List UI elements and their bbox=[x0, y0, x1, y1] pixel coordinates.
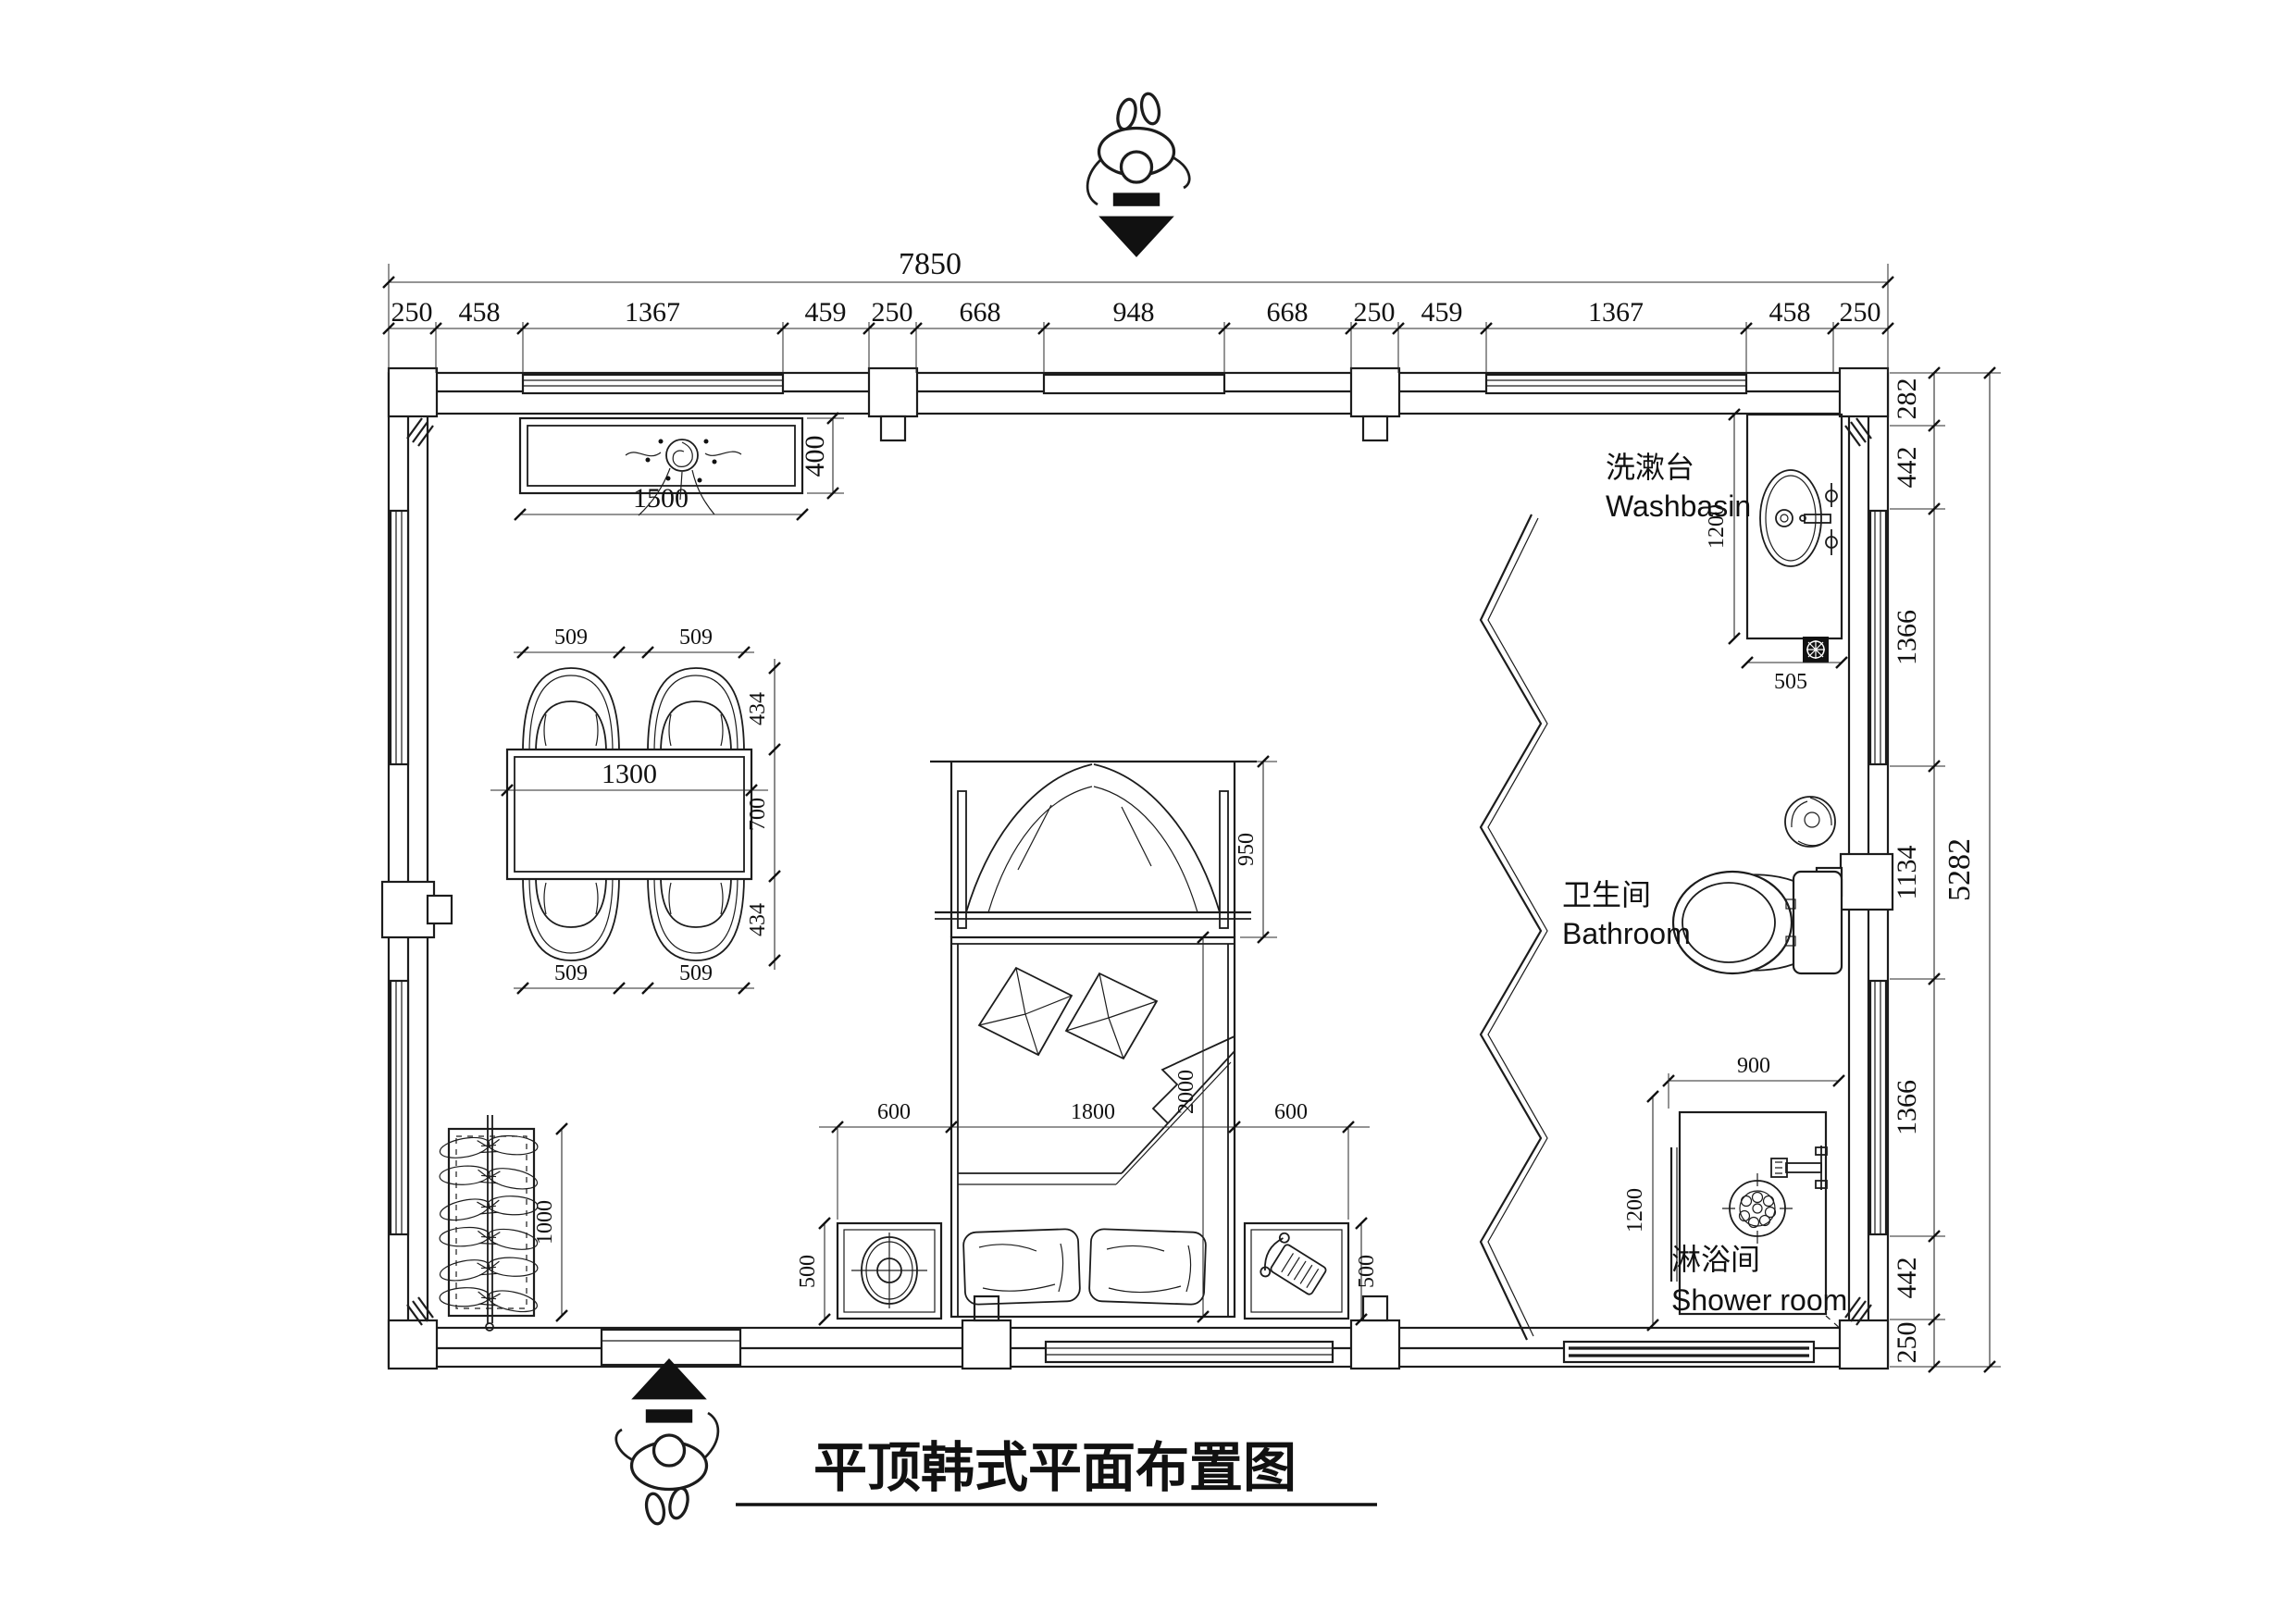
label-shower-zh: 淋浴间 bbox=[1671, 1243, 1760, 1276]
label-bathroom-en: Bathroom bbox=[1562, 917, 1691, 950]
entry-top bbox=[1087, 92, 1189, 257]
window-bottom-center bbox=[1046, 1342, 1333, 1362]
shower-drain-icon bbox=[1722, 1173, 1793, 1244]
shower-area: 900 1200 淋浴间 Shower room bbox=[1623, 1054, 1847, 1331]
bed-set: 600 1800 600 2000 950 500 500 bbox=[796, 756, 1379, 1325]
dim-chair-2: 509 bbox=[554, 961, 588, 985]
dim-right-1: 442 bbox=[1892, 447, 1922, 489]
dim-right-5: 442 bbox=[1892, 1258, 1922, 1299]
dim-top-1: 458 bbox=[459, 297, 501, 328]
dim-console-width: 1500 bbox=[633, 483, 689, 514]
dim-chair-3: 509 bbox=[679, 961, 713, 985]
dim-nightstand-right: 500 bbox=[1355, 1255, 1379, 1288]
dining-set: 1300 509 509 509 509 434 700 434 bbox=[490, 626, 780, 994]
dim-top-12: 250 bbox=[1840, 297, 1881, 328]
toilet-area: 卫生间 Bathroom bbox=[1562, 797, 1842, 973]
floor-drain-icon bbox=[1803, 637, 1829, 663]
dim-chair-1: 509 bbox=[679, 626, 713, 650]
dim-chair-depth-bottom: 434 bbox=[746, 903, 770, 936]
dim-bed-right: 600 bbox=[1274, 1100, 1308, 1124]
dim-bed-width: 1800 bbox=[1071, 1100, 1115, 1124]
label-washbasin-zh: 洗漱台 bbox=[1606, 451, 1694, 484]
dim-right-6: 250 bbox=[1892, 1322, 1922, 1364]
dim-shower-width: 900 bbox=[1737, 1054, 1770, 1078]
dim-console-depth: 400 bbox=[800, 436, 830, 477]
nightstand-right bbox=[1245, 1223, 1348, 1319]
cushions bbox=[979, 968, 1157, 1059]
washbasin-area: 1200 505 洗漱台 Washbasin bbox=[1606, 409, 1847, 694]
page-title: 平顶韩式平面布置图 bbox=[813, 1438, 1297, 1498]
dim-top-4: 250 bbox=[872, 297, 913, 328]
hanger-icon bbox=[438, 1253, 540, 1284]
dim-total-height: 5282 bbox=[1942, 838, 1977, 901]
window-left-upper bbox=[391, 511, 408, 764]
shower-head-icon bbox=[1771, 1146, 1827, 1190]
hanger-icon bbox=[438, 1191, 540, 1224]
hanger-icon bbox=[438, 1161, 540, 1193]
dim-shower-depth: 1200 bbox=[1623, 1188, 1647, 1233]
nightstand-left bbox=[838, 1223, 941, 1319]
dim-right-4: 1366 bbox=[1892, 1080, 1922, 1135]
label-shower-en: Shower room bbox=[1671, 1283, 1847, 1317]
console-cabinet: 1500 400 bbox=[515, 413, 844, 520]
dim-bed-length: 2000 bbox=[1174, 1070, 1198, 1114]
dim-washbasin-width: 505 bbox=[1774, 670, 1807, 694]
wardrobe-rack: 1000 bbox=[438, 1115, 567, 1331]
dim-top-3: 459 bbox=[805, 297, 847, 328]
chair bbox=[523, 876, 619, 960]
dim-right-2: 1366 bbox=[1892, 610, 1922, 665]
hanger-icon bbox=[438, 1282, 540, 1316]
dim-top-0: 250 bbox=[391, 297, 433, 328]
window-top-left bbox=[523, 375, 783, 393]
door-bottom-entry bbox=[602, 1330, 740, 1365]
toilet-icon bbox=[1673, 872, 1842, 973]
sink-basin bbox=[1760, 470, 1821, 566]
window-top-right bbox=[1486, 375, 1746, 393]
corner-hatch-icon bbox=[407, 418, 433, 446]
dim-chair-depth-top: 434 bbox=[746, 692, 770, 725]
dim-top-10: 1367 bbox=[1588, 297, 1644, 328]
dim-top-9: 459 bbox=[1421, 297, 1463, 328]
dim-top-6: 948 bbox=[1113, 297, 1155, 328]
dim-table-width: 1300 bbox=[602, 759, 657, 789]
window-left-lower bbox=[391, 981, 408, 1234]
bed-canopy bbox=[930, 762, 1257, 937]
dim-top-2: 1367 bbox=[625, 297, 680, 328]
hanger-icon bbox=[438, 1223, 539, 1253]
spiral-drain-icon bbox=[1785, 797, 1835, 847]
dim-top-7: 668 bbox=[1267, 297, 1309, 328]
right-dimension-chain: 282 442 1366 1134 1366 442 250 5282 bbox=[1890, 367, 2001, 1372]
dim-total-width: 7850 bbox=[899, 247, 962, 281]
chair bbox=[523, 668, 619, 752]
person-bottom-icon bbox=[616, 1413, 718, 1526]
dim-right-0: 282 bbox=[1892, 378, 1922, 420]
dim-table-depth: 700 bbox=[746, 798, 770, 831]
label-washbasin-en: Washbasin bbox=[1606, 489, 1751, 523]
top-dimension-chain: 7850 250 458 1367 459 250 668 948 668 25… bbox=[383, 247, 1893, 373]
person-top-icon bbox=[1087, 92, 1189, 204]
dim-right-3: 1134 bbox=[1892, 846, 1922, 900]
chair bbox=[648, 876, 744, 960]
entry-arrow-down-icon bbox=[1098, 192, 1174, 257]
dim-nightstand-left: 500 bbox=[796, 1255, 820, 1288]
dim-top-8: 250 bbox=[1354, 297, 1396, 328]
bed-pillows bbox=[963, 1229, 1207, 1305]
dim-bed-left: 600 bbox=[877, 1100, 911, 1124]
floor-plan-page: 7850 250 458 1367 459 250 668 948 668 25… bbox=[0, 0, 2296, 1623]
dim-canopy-depth: 950 bbox=[1235, 833, 1259, 866]
window-right-lower bbox=[1870, 981, 1886, 1234]
door-top-center bbox=[1044, 375, 1224, 393]
dim-wardrobe-length: 1000 bbox=[533, 1200, 557, 1245]
dim-top-5: 668 bbox=[960, 297, 1001, 328]
entry-bottom bbox=[616, 1358, 718, 1526]
lamp-icon bbox=[851, 1233, 927, 1308]
window-right-upper bbox=[1870, 511, 1886, 764]
dim-top-11: 458 bbox=[1769, 297, 1811, 328]
window-bottom-right bbox=[1564, 1342, 1814, 1362]
floor-plan-drawing: 7850 250 458 1367 459 250 668 948 668 25… bbox=[0, 0, 2296, 1623]
telephone-icon bbox=[1256, 1231, 1331, 1303]
dim-chair-0: 509 bbox=[554, 626, 588, 650]
label-bathroom-zh: 卫生间 bbox=[1562, 878, 1651, 911]
entry-arrow-up-icon bbox=[631, 1358, 707, 1423]
folding-partition bbox=[1481, 514, 1547, 1340]
faucet-icon bbox=[1800, 483, 1837, 555]
drawing-title: 平顶韩式平面布置图 bbox=[736, 1438, 1377, 1505]
chair bbox=[648, 668, 744, 752]
